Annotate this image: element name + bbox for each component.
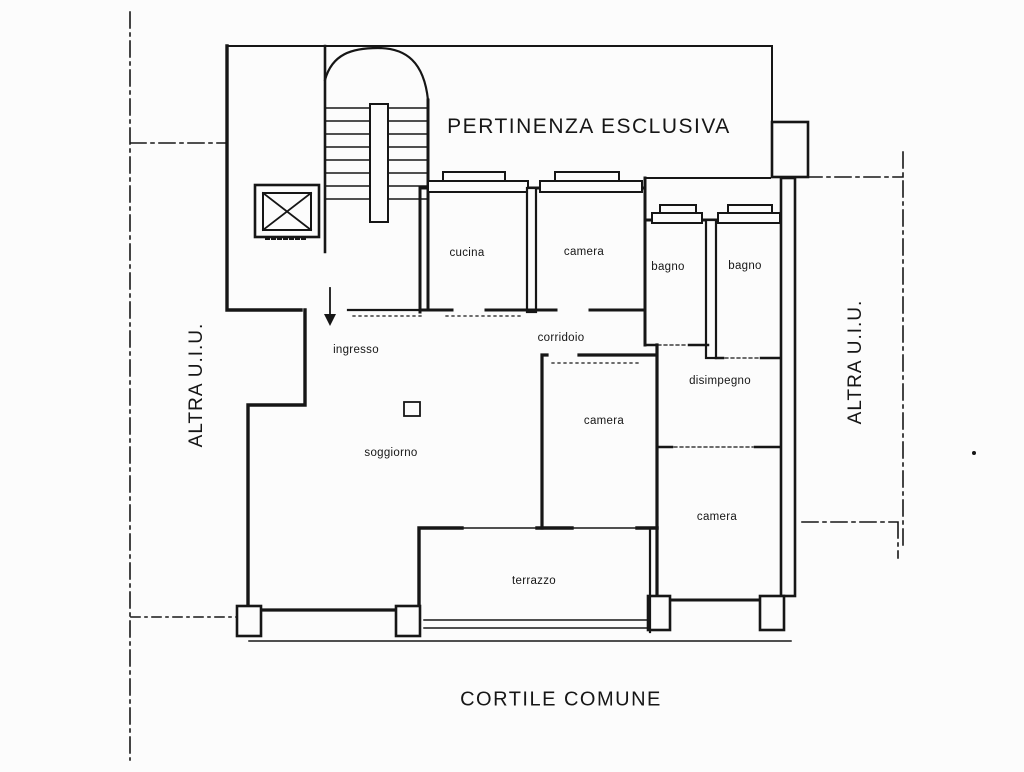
- cucina-camera-divider: [527, 188, 536, 312]
- room-label-camera-2: camera: [584, 415, 624, 427]
- entrance-arrow-icon: [324, 288, 336, 326]
- stair-stringer: [370, 104, 388, 222]
- bagno2-window: [718, 213, 780, 223]
- camera1-window-outer: [555, 172, 619, 181]
- bagno1-window-outer: [660, 205, 696, 213]
- room-label-disimpegno: disimpegno: [689, 375, 751, 387]
- balcony-post-1: [237, 606, 261, 636]
- cucina-window: [428, 181, 528, 192]
- pillar: [772, 122, 808, 177]
- room-label-cucina: cucina: [449, 247, 484, 259]
- boundary-label-left: ALTRA U.I.U.: [186, 323, 208, 448]
- balcony-post-3: [648, 596, 670, 630]
- outer-walls-left: [227, 46, 305, 612]
- pertinenza-top-line: [227, 46, 772, 178]
- room-label-bagno-2: bagno: [728, 260, 761, 272]
- survey-dot: [972, 451, 976, 455]
- room-label-terrazzo: terrazzo: [512, 575, 556, 587]
- room-label-camera-1: camera: [564, 246, 604, 258]
- boundary-label-right: ALTRA U.I.U.: [845, 300, 867, 425]
- terrazzo-railing: [424, 620, 650, 628]
- camera1-window: [540, 181, 642, 192]
- area-label-pertinenza: PERTINENZA ESCLUSIVA: [447, 115, 731, 139]
- camera-center-walls: [542, 345, 657, 600]
- room-label-soggiorno: soggiorno: [364, 447, 417, 459]
- staircase-icon: [325, 46, 428, 310]
- room-label-corridoio: corridoio: [538, 332, 585, 344]
- bagno2-window-outer: [728, 205, 772, 213]
- room-label-camera-3: camera: [697, 511, 737, 523]
- outer-wall-right: [781, 178, 795, 596]
- bagni-divider: [706, 220, 716, 358]
- balcony-post-2: [396, 606, 420, 636]
- floor-plan: PERTINENZA ESCLUSIVA CORTILE COMUNE ALTR…: [0, 0, 1024, 772]
- area-label-cortile: CORTILE COMUNE: [460, 689, 662, 712]
- stair-arc: [325, 48, 428, 100]
- bagno1-window: [652, 213, 702, 223]
- column-marker: [404, 402, 420, 416]
- elevator-shaft-icon: [255, 185, 319, 239]
- balcony-post-4: [760, 596, 784, 630]
- room-label-bagno-1: bagno: [651, 261, 684, 273]
- room-label-ingresso: ingresso: [333, 344, 379, 356]
- cucina-window-outer: [443, 172, 505, 181]
